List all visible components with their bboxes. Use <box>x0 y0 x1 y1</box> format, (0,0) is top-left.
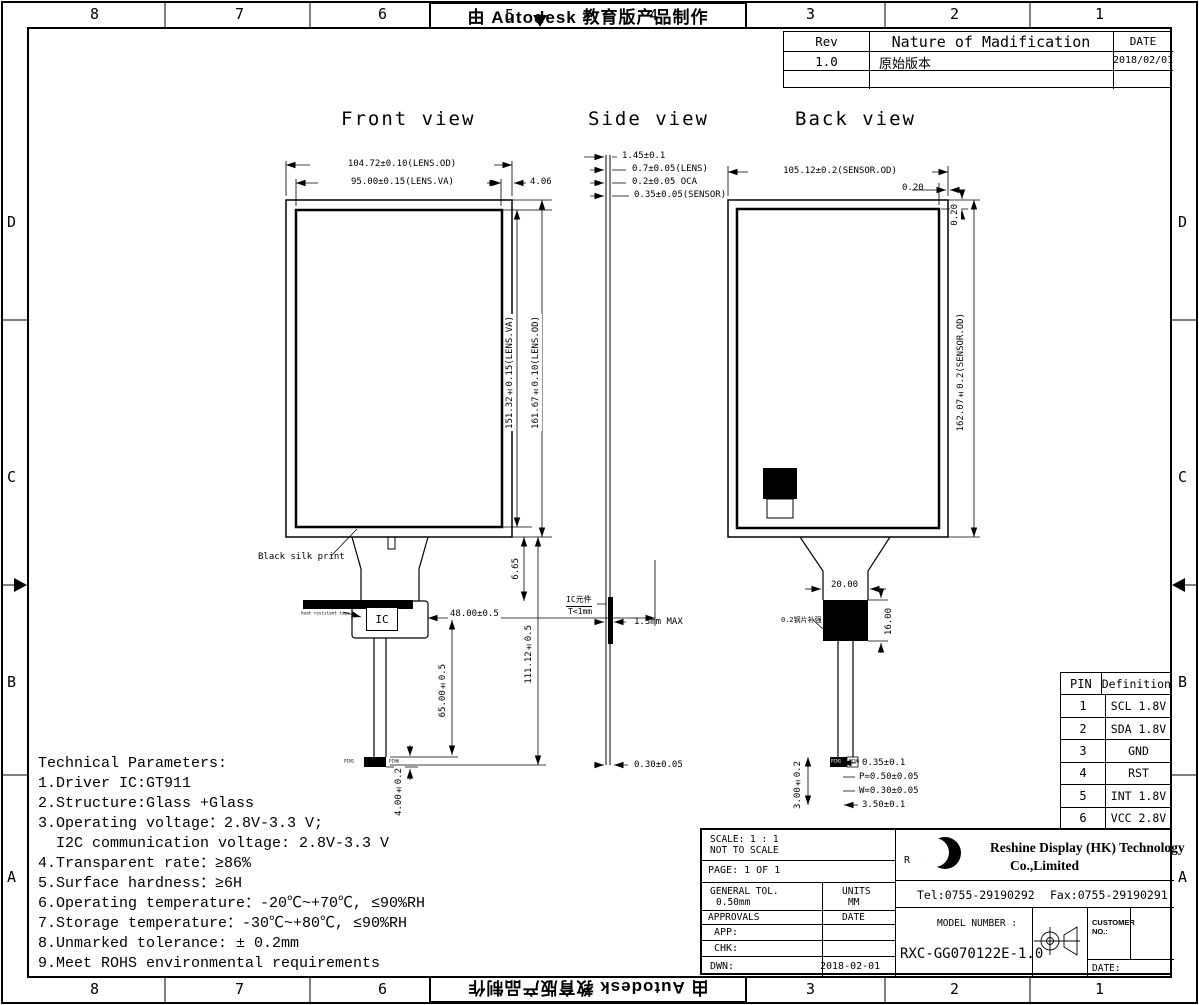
customer-date-label: DATE: <box>1092 963 1121 974</box>
front-pin6-label: PIN6 <box>389 759 399 764</box>
tape-note-label: heat resistant tape <box>301 611 350 616</box>
back-dim-connector-height: 3.00±0.2 <box>793 759 804 811</box>
zone-row-b-right: B <box>1178 674 1187 690</box>
page-label: PAGE: 1 OF 1 <box>708 865 780 876</box>
front-dim-lens-od-height: 161.67±0.10(LENS.OD) <box>531 314 542 431</box>
autodesk-banner-bottom: 由 Autodesk 教育版产品制作 <box>429 976 747 1003</box>
zone-col-6-top: 6 <box>378 6 387 22</box>
zone-row-d-right: D <box>1178 214 1187 230</box>
tech-line: 6.Operating temperature：-20℃~+70℃, ≤90%R… <box>38 894 425 914</box>
nature-value: 原始版本 <box>879 53 931 72</box>
zone-row-a-left: A <box>7 869 16 885</box>
back-dim-connector-edge: 0.35±0.1 <box>860 758 907 768</box>
model-number-value: RXC-GG070122E-1.0 <box>900 946 1043 962</box>
zone-col-7-top: 7 <box>235 6 244 22</box>
zone-col-2-bottom: 2 <box>950 981 959 997</box>
zone-col-7-bottom: 7 <box>235 981 244 997</box>
pin-row: 5 INT 1.8V <box>1061 785 1171 807</box>
tech-line: I2C communication voltage: 2.8V-3.3 V <box>38 834 425 854</box>
zone-col-3-top: 3 <box>806 6 815 22</box>
dwn-label: DWN: <box>710 961 734 972</box>
stiffener-label: 0.2钢片补强 <box>779 615 824 625</box>
front-dim-lens-va-height: 151.32±0.15(LENS.VA) <box>505 314 516 431</box>
zone-col-6-bottom: 6 <box>378 981 387 997</box>
pin-row: 1 SCL 1.8V <box>1061 695 1171 717</box>
units-label: UNITS <box>842 886 871 897</box>
nature-header: Nature of Madification <box>869 33 1113 51</box>
front-dim-fpc-mid: 65.00±0.5 <box>438 662 449 719</box>
back-dim-trace-width: W=0.30±0.05 <box>857 786 921 796</box>
customer-no-label-line1: CUSTOMER <box>1092 918 1135 927</box>
zone-col-1-bottom: 1 <box>1095 981 1104 997</box>
tech-line: 3.Operating voltage：2.8V-3.3 V; <box>38 814 425 834</box>
technical-parameters: Technical Parameters: 1.Driver IC:GT911 … <box>38 754 425 974</box>
pin-col-header: PIN <box>1061 673 1102 694</box>
zone-row-d-left: D <box>7 214 16 230</box>
back-dim-right-edge: 0.20 <box>950 202 961 228</box>
units-value: MM <box>848 897 859 908</box>
ic-box-label: IC <box>366 607 398 631</box>
company-name-line1: Reshine Display (HK) Technology <box>990 840 1185 856</box>
side-dim-tail: 0.30±0.05 <box>632 760 685 770</box>
title-block: SCALE: 1 : 1 NOT TO SCALE PAGE: 1 OF 1 G… <box>700 828 1172 975</box>
front-view-title: Front view <box>341 108 475 130</box>
scale-label: SCALE: 1 : 1 <box>710 834 779 845</box>
zone-col-2-top: 2 <box>950 6 959 22</box>
front-dim-edge: 4.06 <box>528 177 554 187</box>
front-dim-fpc-length: 111.12±0.5 <box>524 623 535 686</box>
back-pin1-label: PIN1 <box>831 759 841 764</box>
date-value: 2018/02/01 <box>1113 55 1173 66</box>
tech-line: 5.Surface hardness：≥6H <box>38 874 425 894</box>
tel-label: Tel:0755-29190292 <box>917 888 1035 902</box>
tech-line: 9.Meet ROHS environmental requirements <box>38 954 425 974</box>
side-dim-ic: 1.3mm MAX <box>632 617 685 627</box>
center-mark-arrow-icon <box>533 15 547 27</box>
back-dim-sensor-od-height: 162.07±0.2(SENSOR.OD) <box>956 311 967 433</box>
zone-row-a-right: A <box>1178 869 1187 885</box>
pin-row: 2 SDA 1.8V <box>1061 718 1171 740</box>
general-tol-value: 0.50mm <box>716 897 750 908</box>
side-ic-note-line1: IC元件 <box>566 595 592 607</box>
zone-col-8-bottom: 8 <box>90 981 99 997</box>
definition-col-header: Definition <box>1102 673 1171 694</box>
autodesk-banner-top: 由 Autodesk 教育版产品制作 <box>429 2 747 29</box>
back-dim-pitch: P=0.50±0.05 <box>857 772 921 782</box>
front-pin1-label: PIN1 <box>344 759 354 764</box>
front-dim-lens-va-width: 95.00±0.15(LENS.VA) <box>318 177 487 187</box>
app-label: APP: <box>714 927 738 938</box>
pin-definition-table: PIN Definition 1 SCL 1.8V 2 SDA 1.8V 3 G… <box>1060 672 1172 830</box>
zone-row-c-right: C <box>1178 469 1187 485</box>
front-dim-tail-top: 6.65 <box>511 556 522 582</box>
side-dim-oca: 0.2±0.05 OCA <box>630 177 699 187</box>
scale-note: NOT TO SCALE <box>710 845 779 856</box>
back-dim-stiffener-height: 16.00 <box>884 606 895 637</box>
black-silk-print-label: Black silk print <box>256 552 347 562</box>
tech-title: Technical Parameters: <box>38 754 425 774</box>
back-dim-sensor-od-width: 105.12±0.2(SENSOR.OD) <box>748 166 932 176</box>
pin-row: 6 VCC 2.8V <box>1061 808 1171 829</box>
pin-row: 4 RST <box>1061 763 1171 785</box>
side-view-title: Side view <box>588 108 709 130</box>
tech-line: 2.Structure:Glass +Glass <box>38 794 425 814</box>
general-tol-label: GENERAL TOL. <box>710 886 779 897</box>
back-dim-stiffener-width: 20.00 <box>829 580 860 590</box>
logo-moon-cutout <box>920 838 949 867</box>
date-header: DATE <box>1113 35 1173 48</box>
revision-table: Rev Nature of Madification DATE 1.0 原始版本… <box>783 31 1172 88</box>
customer-no-label-line2: NO.: <box>1092 927 1108 936</box>
side-dim-sensor: 0.35±0.05(SENSOR) <box>632 190 728 200</box>
cad-sheet: 由 Autodesk 教育版产品制作 由 Autodesk 教育版产品制作 8 … <box>0 0 1199 1005</box>
zone-col-5-top: 5 <box>505 7 514 23</box>
side-ic-note-line2: T<1mm <box>566 607 594 617</box>
company-name-line2: Co.,Limited <box>1010 858 1079 874</box>
back-pin6-label: PIN6 <box>849 759 859 764</box>
model-number-label: MODEL NUMBER : <box>937 918 1017 929</box>
tech-line: 1.Driver IC:GT911 <box>38 774 425 794</box>
approvals-date-label: DATE <box>842 912 865 923</box>
chk-label: CHK: <box>714 943 738 954</box>
tech-line: 7.Storage temperature：-30℃~+80℃, ≤90%RH <box>38 914 425 934</box>
tech-line: 4.Transparent rate：≥86% <box>38 854 425 874</box>
pin-row: 3 GND <box>1061 740 1171 762</box>
zone-col-3-bottom: 3 <box>806 981 815 997</box>
back-view-title: Back view <box>795 108 916 130</box>
dwn-date-value: 2018-02-01 <box>820 961 880 972</box>
zone-row-c-left: C <box>7 469 16 485</box>
zone-col-4-top: 4 <box>649 7 658 23</box>
back-dim-connector-width: 3.50±0.1 <box>860 800 907 810</box>
zone-row-b-left: B <box>7 674 16 690</box>
back-dim-top-edge: 0.20 <box>900 183 926 193</box>
rev-value: 1.0 <box>784 54 869 69</box>
zone-col-8-top: 8 <box>90 6 99 22</box>
zone-col-1-top: 1 <box>1095 6 1104 22</box>
front-dim-lens-od-width: 104.72±0.10(LENS.OD) <box>310 159 494 169</box>
front-dim-fpc-offset: 48.00±0.5 <box>448 609 501 619</box>
side-dim-lens: 0.7±0.05(LENS) <box>630 164 710 174</box>
fax-label: Fax:0755-29190291 <box>1050 888 1168 902</box>
pin-table-header: PIN Definition <box>1061 673 1171 695</box>
side-dim-total: 1.45±0.1 <box>620 151 667 161</box>
approvals-label: APPROVALS <box>708 912 759 923</box>
rev-header: Rev <box>784 34 869 49</box>
tech-line: 8.Unmarked tolerance: ± 0.2mm <box>38 934 425 954</box>
